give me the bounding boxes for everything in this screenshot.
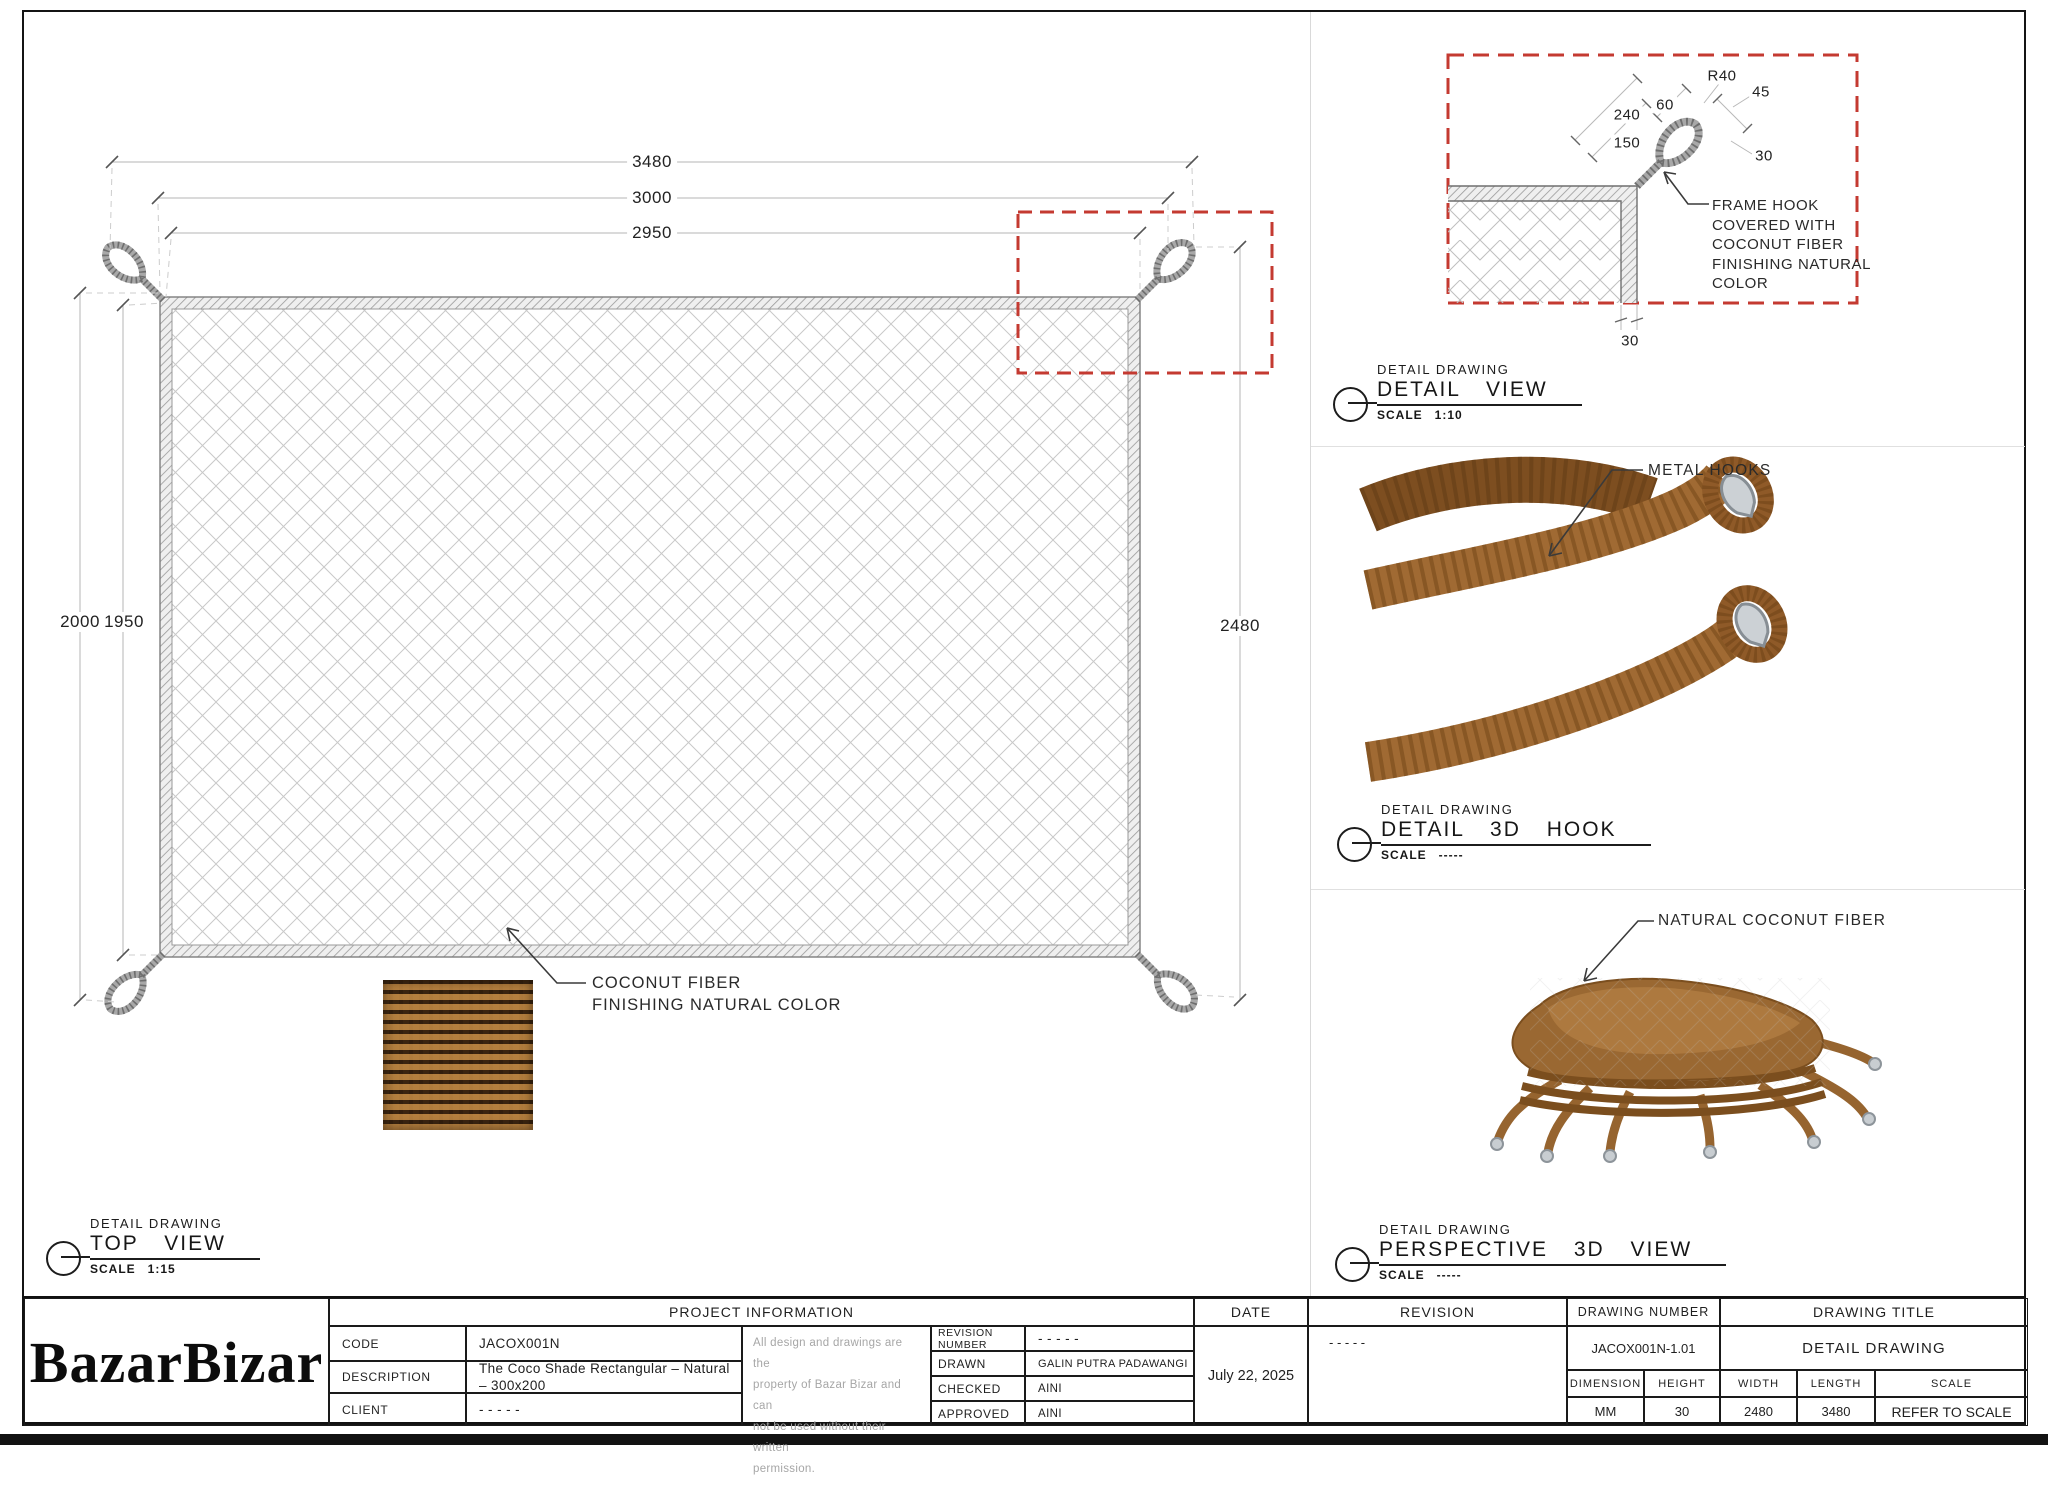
- perspective-view-title: DETAIL DRAWING PERSPECTIVE 3D VIEW SCALE…: [1335, 1222, 1726, 1282]
- section-label: DETAIL DRAWING: [1381, 802, 1651, 817]
- brand-logo: BazarBizar: [30, 1329, 323, 1396]
- disclaimer-cell: All design and drawings are the property…: [742, 1326, 931, 1426]
- drawing-title-header: DRAWING TITLE: [1720, 1298, 2028, 1326]
- view-marker-circle: [1333, 387, 1368, 422]
- approved-label: APPROVED: [931, 1401, 1025, 1426]
- revision-number-label: REVISION NUMBER: [931, 1326, 1025, 1351]
- description-label: DESCRIPTION: [329, 1361, 466, 1393]
- corner-loop-bottom-left: [101, 946, 173, 1018]
- dim-150: 150: [1611, 135, 1644, 152]
- drawn-value: GALIN PUTRA PADAWANGI: [1025, 1351, 1194, 1376]
- client-value: - - - - -: [466, 1393, 742, 1426]
- client-label: CLIENT: [329, 1393, 466, 1426]
- logo-cell: BazarBizar: [24, 1298, 329, 1426]
- scale-line: SCALE1:10: [1377, 408, 1582, 422]
- dimension-header: DIMENSION: [1567, 1370, 1644, 1397]
- scale-value: REFER TO SCALE: [1875, 1397, 2028, 1426]
- view-marker-circle: [1337, 827, 1372, 862]
- dim-net-height: 1950: [99, 612, 149, 632]
- view-marker-circle: [1335, 1247, 1370, 1282]
- project-information-header: PROJECT INFORMATION: [329, 1298, 1194, 1326]
- dim-30-side: 30: [1752, 148, 1776, 165]
- scale-line: SCALE-----: [1379, 1268, 1726, 1282]
- length-header: LENGTH: [1797, 1370, 1875, 1397]
- checked-label: CHECKED: [931, 1376, 1025, 1401]
- detail-view-title: DETAIL DRAWING DETAIL VIEW SCALE1:10: [1333, 362, 1582, 422]
- dim-45: 45: [1749, 84, 1773, 101]
- drawing-number-value: JACOX001N-1.01: [1567, 1326, 1720, 1370]
- corner-loop-bottom-right: [1129, 944, 1201, 1016]
- section-label: DETAIL DRAWING: [1377, 362, 1582, 377]
- view-name: DETAIL 3D HOOK: [1381, 817, 1651, 846]
- fiber-note-line1: COCONUT FIBER: [592, 972, 841, 994]
- hooks-photo: [1368, 454, 1790, 762]
- checked-value: AINI: [1025, 1376, 1194, 1401]
- date-value: July 22, 2025: [1194, 1326, 1308, 1426]
- date-header: DATE: [1194, 1298, 1308, 1326]
- fiber-note-line2: FINISHING NATURAL COLOR: [592, 994, 841, 1016]
- scale-line: SCALE1:15: [90, 1262, 260, 1276]
- detail-corner-loop: [1625, 114, 1706, 195]
- dim-hook-width: 3000: [627, 188, 677, 208]
- dimension-value: MM: [1567, 1397, 1644, 1426]
- height-value: 30: [1644, 1397, 1720, 1426]
- dim-net-width: 2950: [627, 223, 677, 243]
- drawing-sheet: { "top_view": { "section_label": "DETAIL…: [0, 0, 2048, 1448]
- height-header: HEIGHT: [1644, 1370, 1720, 1397]
- drawing-number-header: DRAWING NUMBER: [1567, 1298, 1720, 1326]
- revision-value: - - - - -: [1308, 1326, 1567, 1426]
- drawing-title-value: DETAIL DRAWING: [1720, 1326, 2028, 1370]
- dim-60: 60: [1653, 97, 1677, 114]
- folded-net-photo: [1491, 921, 1881, 1162]
- view-marker-line: [1350, 1262, 1379, 1264]
- frame-hook-note: FRAME HOOK COVERED WITH COCONUT FIBER FI…: [1712, 196, 1871, 294]
- fiber-note: COCONUT FIBER FINISHING NATURAL COLOR: [592, 972, 841, 1016]
- code-value: JACOX001N: [466, 1326, 742, 1361]
- scale-line: SCALE-----: [1381, 848, 1651, 862]
- width-header: WIDTH: [1720, 1370, 1797, 1397]
- disclaimer-text: All design and drawings are the property…: [743, 1327, 930, 1486]
- section-label: DETAIL DRAWING: [90, 1216, 260, 1231]
- revision-number-value: - - - - -: [1025, 1326, 1194, 1351]
- corner-loop-top-right: [1127, 236, 1199, 308]
- dim-30-bottom: 30: [1618, 333, 1642, 350]
- dim-overall-height: 2000: [55, 612, 105, 632]
- view-name: DETAIL VIEW: [1377, 377, 1582, 406]
- dim-240: 240: [1611, 107, 1644, 124]
- natural-coconut-fiber-label: NATURAL COCONUT FIBER: [1658, 912, 1886, 930]
- drawn-label: DRAWN: [931, 1351, 1025, 1376]
- dim-radius: R40: [1704, 68, 1739, 85]
- revision-header: REVISION: [1308, 1298, 1567, 1326]
- net-top-view: [99, 236, 1201, 1018]
- dim-overall-width: 3480: [627, 152, 677, 172]
- view-marker-line: [1352, 842, 1381, 844]
- top-view-title: DETAIL DRAWING TOP VIEW SCALE1:15: [46, 1216, 260, 1276]
- scale-header: SCALE: [1875, 1370, 2028, 1397]
- approved-value: AINI: [1025, 1401, 1194, 1426]
- metal-hooks-label: METAL HOOKS: [1648, 462, 1771, 480]
- view-marker-line: [61, 1256, 90, 1258]
- width-value: 2480: [1720, 1397, 1797, 1426]
- dim-side-height: 2480: [1215, 616, 1265, 636]
- length-value: 3480: [1797, 1397, 1875, 1426]
- view-name: TOP VIEW: [90, 1231, 260, 1260]
- view-marker-circle: [46, 1241, 81, 1276]
- view-marker-line: [1348, 402, 1377, 404]
- description-value: The Coco Shade Rectangular – Natural – 3…: [466, 1361, 742, 1393]
- code-label: CODE: [329, 1326, 466, 1361]
- fiber-swatch-photo: [383, 980, 533, 1130]
- section-label: DETAIL DRAWING: [1379, 1222, 1726, 1237]
- title-block: BazarBizar PROJECT INFORMATION CODE JACO…: [22, 1296, 2026, 1424]
- view-name: PERSPECTIVE 3D VIEW: [1379, 1237, 1726, 1266]
- hook-view-title: DETAIL DRAWING DETAIL 3D HOOK SCALE-----: [1337, 802, 1651, 862]
